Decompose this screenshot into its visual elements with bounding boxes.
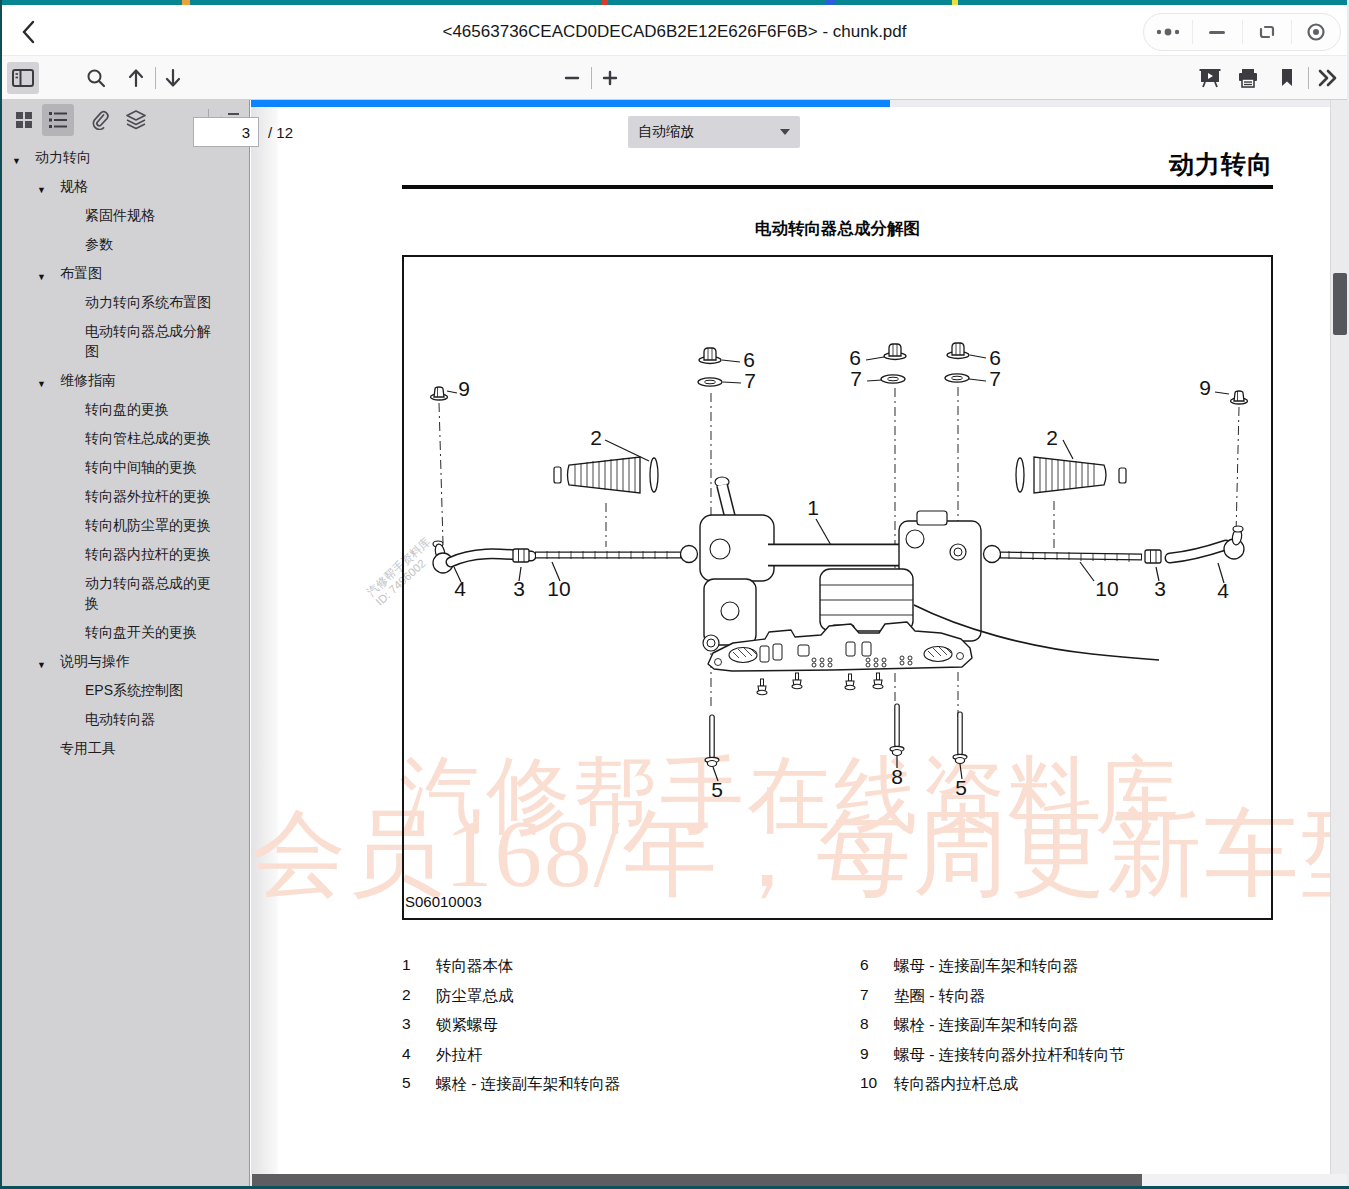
part-label: 螺栓 - 连接副车架和转向器 bbox=[894, 1015, 1078, 1036]
outline-item-label: 电动转向器 bbox=[85, 709, 155, 729]
part-number: 9 bbox=[860, 1045, 894, 1063]
outline-item-label: 动力转向系统布置图 bbox=[85, 292, 211, 312]
part-label: 转向器内拉杆总成 bbox=[894, 1074, 1018, 1095]
part-label: 螺母 - 连接转向器外拉杆和转向节 bbox=[894, 1045, 1125, 1066]
toolbar-separator bbox=[1308, 67, 1309, 89]
outline-item[interactable]: ▼规格 bbox=[0, 176, 250, 196]
zoom-select[interactable]: 自动缩放 bbox=[628, 116, 800, 148]
arrow-down-icon bbox=[164, 68, 182, 88]
vertical-scrollbar-thumb[interactable] bbox=[1333, 273, 1347, 335]
part-row: 2防尘罩总成 bbox=[402, 986, 842, 1016]
outline-item[interactable]: 转向器内拉杆的更换 bbox=[0, 544, 250, 564]
steering-gear-exploded-diagram: 9267676729143101034585 bbox=[402, 255, 1273, 920]
outline-item-label: 维修指南 bbox=[60, 370, 116, 390]
outline-item-label: EPS系统控制图 bbox=[85, 680, 183, 700]
callout-number: 5 bbox=[955, 776, 967, 799]
collapse-caret-icon[interactable]: ▼ bbox=[37, 374, 46, 394]
collapse-caret-icon[interactable]: ▼ bbox=[37, 655, 46, 675]
outline-item[interactable]: 专用工具 bbox=[0, 738, 250, 758]
part-number: 7 bbox=[860, 986, 894, 1004]
outline-item[interactable]: 转向盘开关的更换 bbox=[0, 622, 250, 642]
outline-item[interactable]: EPS系统控制图 bbox=[0, 680, 250, 700]
pdf-sidebar: ▼动力转向▼规格紧固件规格参数▼布置图动力转向系统布置图电动转向器总成分解图▼维… bbox=[0, 100, 250, 1186]
horizontal-scrollbar[interactable] bbox=[250, 1174, 1349, 1186]
figure-title: 电动转向器总成分解图 bbox=[402, 218, 1273, 240]
callout-number: 6 bbox=[743, 348, 755, 371]
page-count-label: / 12 bbox=[268, 124, 293, 141]
callout-number: 8 bbox=[891, 765, 903, 788]
collapse-caret-icon[interactable]: ▼ bbox=[37, 180, 46, 200]
layers-icon bbox=[125, 110, 147, 130]
presentation-icon bbox=[1199, 68, 1221, 88]
outline-item[interactable]: ▼动力转向 bbox=[0, 147, 250, 167]
paperclip-icon bbox=[91, 110, 109, 130]
target-circle-icon bbox=[1306, 22, 1326, 42]
parts-list-right: 6螺母 - 连接副车架和转向器7垫圈 - 转向器8螺栓 - 连接副车架和转向器9… bbox=[860, 956, 1300, 1104]
part-row: 1转向器本体 bbox=[402, 956, 842, 986]
outline-view-button[interactable] bbox=[42, 104, 74, 136]
plus-icon bbox=[602, 70, 618, 86]
part-row: 6螺母 - 连接副车架和转向器 bbox=[860, 956, 1300, 986]
outline-item[interactable]: 紧固件规格 bbox=[0, 205, 250, 225]
part-number: 3 bbox=[402, 1015, 436, 1033]
outline-item-label: 规格 bbox=[60, 176, 88, 196]
outline-item[interactable]: 转向机防尘罩的更换 bbox=[0, 515, 250, 535]
part-row: 8螺栓 - 连接副车架和转向器 bbox=[860, 1015, 1300, 1045]
pdf-page: 汽修帮手在线资料库 会员168/年，每周更新车型 汽修帮手资料库 ID: 749… bbox=[251, 107, 1330, 1174]
bookmark-icon bbox=[1280, 68, 1294, 88]
callout-number: 9 bbox=[458, 377, 470, 400]
callout-number: 7 bbox=[850, 367, 862, 390]
outline-list: ▼动力转向▼规格紧固件规格参数▼布置图动力转向系统布置图电动转向器总成分解图▼维… bbox=[0, 140, 250, 767]
chapter-title: 动力转向 bbox=[251, 148, 1273, 181]
page-left-shade bbox=[251, 107, 278, 1174]
outline-item[interactable]: 动力转向器总成的更换 bbox=[0, 573, 250, 613]
part-number: 8 bbox=[860, 1015, 894, 1033]
header-rule bbox=[402, 185, 1273, 189]
part-number: 4 bbox=[402, 1045, 436, 1063]
part-number: 6 bbox=[860, 956, 894, 974]
print-button[interactable] bbox=[1232, 62, 1264, 94]
part-label: 外拉杆 bbox=[436, 1045, 483, 1066]
outline-item[interactable]: 转向盘的更换 bbox=[0, 399, 250, 419]
part-row: 7垫圈 - 转向器 bbox=[860, 986, 1300, 1016]
part-label: 垫圈 - 转向器 bbox=[894, 986, 985, 1007]
outline-item[interactable]: ▼布置图 bbox=[0, 263, 250, 283]
search-icon bbox=[86, 68, 106, 88]
callout-number: 3 bbox=[1154, 577, 1166, 600]
minimize-button[interactable] bbox=[1192, 20, 1241, 44]
outline-item[interactable]: 转向中间轴的更换 bbox=[0, 457, 250, 477]
part-number: 5 bbox=[402, 1074, 436, 1092]
outline-item[interactable]: 转向管柱总成的更换 bbox=[0, 428, 250, 448]
outline-item[interactable]: 动力转向系统布置图 bbox=[0, 292, 250, 312]
outline-item[interactable]: ▼说明与操作 bbox=[0, 651, 250, 671]
find-button[interactable] bbox=[80, 62, 112, 94]
close-button[interactable] bbox=[1291, 20, 1340, 44]
arrow-up-icon bbox=[127, 68, 145, 88]
minimize-icon bbox=[1208, 26, 1226, 38]
part-number: 2 bbox=[402, 986, 436, 1004]
part-row: 9螺母 - 连接转向器外拉杆和转向节 bbox=[860, 1045, 1300, 1075]
outline-item-label: 布置图 bbox=[60, 263, 102, 283]
ellipsis-icon bbox=[1155, 26, 1181, 38]
callout-number: 4 bbox=[1217, 579, 1229, 602]
part-label: 转向器本体 bbox=[436, 956, 514, 977]
window-top-edge bbox=[0, 0, 1349, 5]
chevron-down-icon bbox=[780, 129, 790, 135]
sidebar-toggle-icon bbox=[12, 69, 34, 87]
outline-item-label: 参数 bbox=[85, 234, 113, 254]
zoom-out-button[interactable] bbox=[556, 62, 588, 94]
callout-number: 4 bbox=[454, 577, 466, 600]
part-label: 螺栓 - 连接副车架和转向器 bbox=[436, 1074, 620, 1095]
callout-number: 7 bbox=[744, 369, 756, 392]
pdf-toolbar: / 12 自动缩放 bbox=[0, 56, 1349, 100]
outline-item-label: 专用工具 bbox=[60, 738, 116, 758]
outline-item-label: 紧固件规格 bbox=[85, 205, 155, 225]
outline-item-label: 转向管柱总成的更换 bbox=[85, 428, 211, 448]
outline-icon bbox=[48, 111, 68, 129]
outline-item[interactable]: 电动转向器 bbox=[0, 709, 250, 729]
title-bar: <46563736CEACD0DECAD6B2E12E626F6F6B> - c… bbox=[0, 5, 1349, 56]
part-number: 1 bbox=[402, 956, 436, 974]
callout-number: 9 bbox=[1199, 376, 1211, 399]
callout-number: 10 bbox=[1095, 577, 1118, 600]
outline-item[interactable]: 转向器外拉杆的更换 bbox=[0, 486, 250, 506]
outline-item-label: 转向器外拉杆的更换 bbox=[85, 486, 211, 506]
part-label: 锁紧螺母 bbox=[436, 1015, 498, 1036]
loading-bar bbox=[251, 100, 890, 107]
outline-item-label: 转向中间轴的更换 bbox=[85, 457, 197, 477]
thumbnails-view-button[interactable] bbox=[8, 104, 40, 136]
part-number: 10 bbox=[860, 1074, 894, 1092]
toolbar-separator bbox=[591, 67, 592, 89]
zoom-in-button[interactable] bbox=[594, 62, 626, 94]
window-capsule bbox=[1143, 13, 1341, 51]
callout-number: 7 bbox=[989, 367, 1001, 390]
print-icon bbox=[1237, 68, 1259, 88]
outline-item[interactable]: ▼维修指南 bbox=[0, 370, 250, 390]
attachments-view-button[interactable] bbox=[84, 104, 116, 136]
part-row: 4外拉杆 bbox=[402, 1045, 842, 1075]
outline-item[interactable]: 参数 bbox=[0, 234, 250, 254]
callout-number: 6 bbox=[849, 346, 861, 369]
window-left-edge bbox=[0, 0, 2, 1189]
outline-item-label: 转向机防尘罩的更换 bbox=[85, 515, 211, 535]
layers-view-button[interactable] bbox=[120, 104, 152, 136]
bookmark-button[interactable] bbox=[1271, 62, 1303, 94]
callout-number: 3 bbox=[513, 577, 525, 600]
restore-button[interactable] bbox=[1242, 20, 1291, 44]
minus-icon bbox=[564, 70, 580, 86]
callout-number: 1 bbox=[807, 496, 819, 519]
callout-number: 2 bbox=[590, 426, 602, 449]
more-tools-button[interactable] bbox=[1312, 62, 1344, 94]
toggle-sidebar-button[interactable] bbox=[7, 62, 39, 94]
chevron-double-right-icon bbox=[1317, 69, 1339, 87]
next-page-button[interactable] bbox=[157, 62, 189, 94]
previous-page-button[interactable] bbox=[120, 62, 152, 94]
restore-icon bbox=[1258, 23, 1276, 41]
outline-item-label: 转向器内拉杆的更换 bbox=[85, 544, 211, 564]
zoom-select-value: 自动缩放 bbox=[638, 123, 694, 141]
callout-number: 5 bbox=[711, 778, 723, 801]
outline-item-label: 说明与操作 bbox=[60, 651, 130, 671]
part-label: 防尘罩总成 bbox=[436, 986, 514, 1007]
outline-item-label: 动力转向器总成的更换 bbox=[85, 573, 212, 613]
callout-number: 6 bbox=[989, 346, 1001, 369]
horizontal-scrollbar-thumb[interactable] bbox=[252, 1174, 1142, 1186]
callout-number: 10 bbox=[547, 577, 570, 600]
part-row: 10转向器内拉杆总成 bbox=[860, 1074, 1300, 1104]
toolbar-separator bbox=[155, 67, 156, 89]
part-label: 螺母 - 连接副车架和转向器 bbox=[894, 956, 1078, 977]
part-row: 3锁紧螺母 bbox=[402, 1015, 842, 1045]
collapse-caret-icon[interactable]: ▼ bbox=[12, 151, 21, 171]
outline-item-label: 转向盘开关的更换 bbox=[85, 622, 197, 642]
callout-number: 2 bbox=[1046, 426, 1058, 449]
part-row: 5螺栓 - 连接副车架和转向器 bbox=[402, 1074, 842, 1104]
outline-item-label: 动力转向 bbox=[35, 147, 91, 167]
collapse-caret-icon[interactable]: ▼ bbox=[37, 267, 46, 287]
outline-item[interactable]: 电动转向器总成分解图 bbox=[0, 321, 250, 361]
more-options-button[interactable] bbox=[1144, 20, 1192, 44]
thumbnails-icon bbox=[15, 111, 33, 129]
outline-item-label: 转向盘的更换 bbox=[85, 399, 169, 419]
outline-item-label: 电动转向器总成分解图 bbox=[85, 321, 212, 361]
parts-list-left: 1转向器本体2防尘罩总成3锁紧螺母4外拉杆5螺栓 - 连接副车架和转向器 bbox=[402, 956, 842, 1104]
presentation-mode-button[interactable] bbox=[1194, 62, 1226, 94]
page-number-input[interactable] bbox=[193, 117, 259, 147]
